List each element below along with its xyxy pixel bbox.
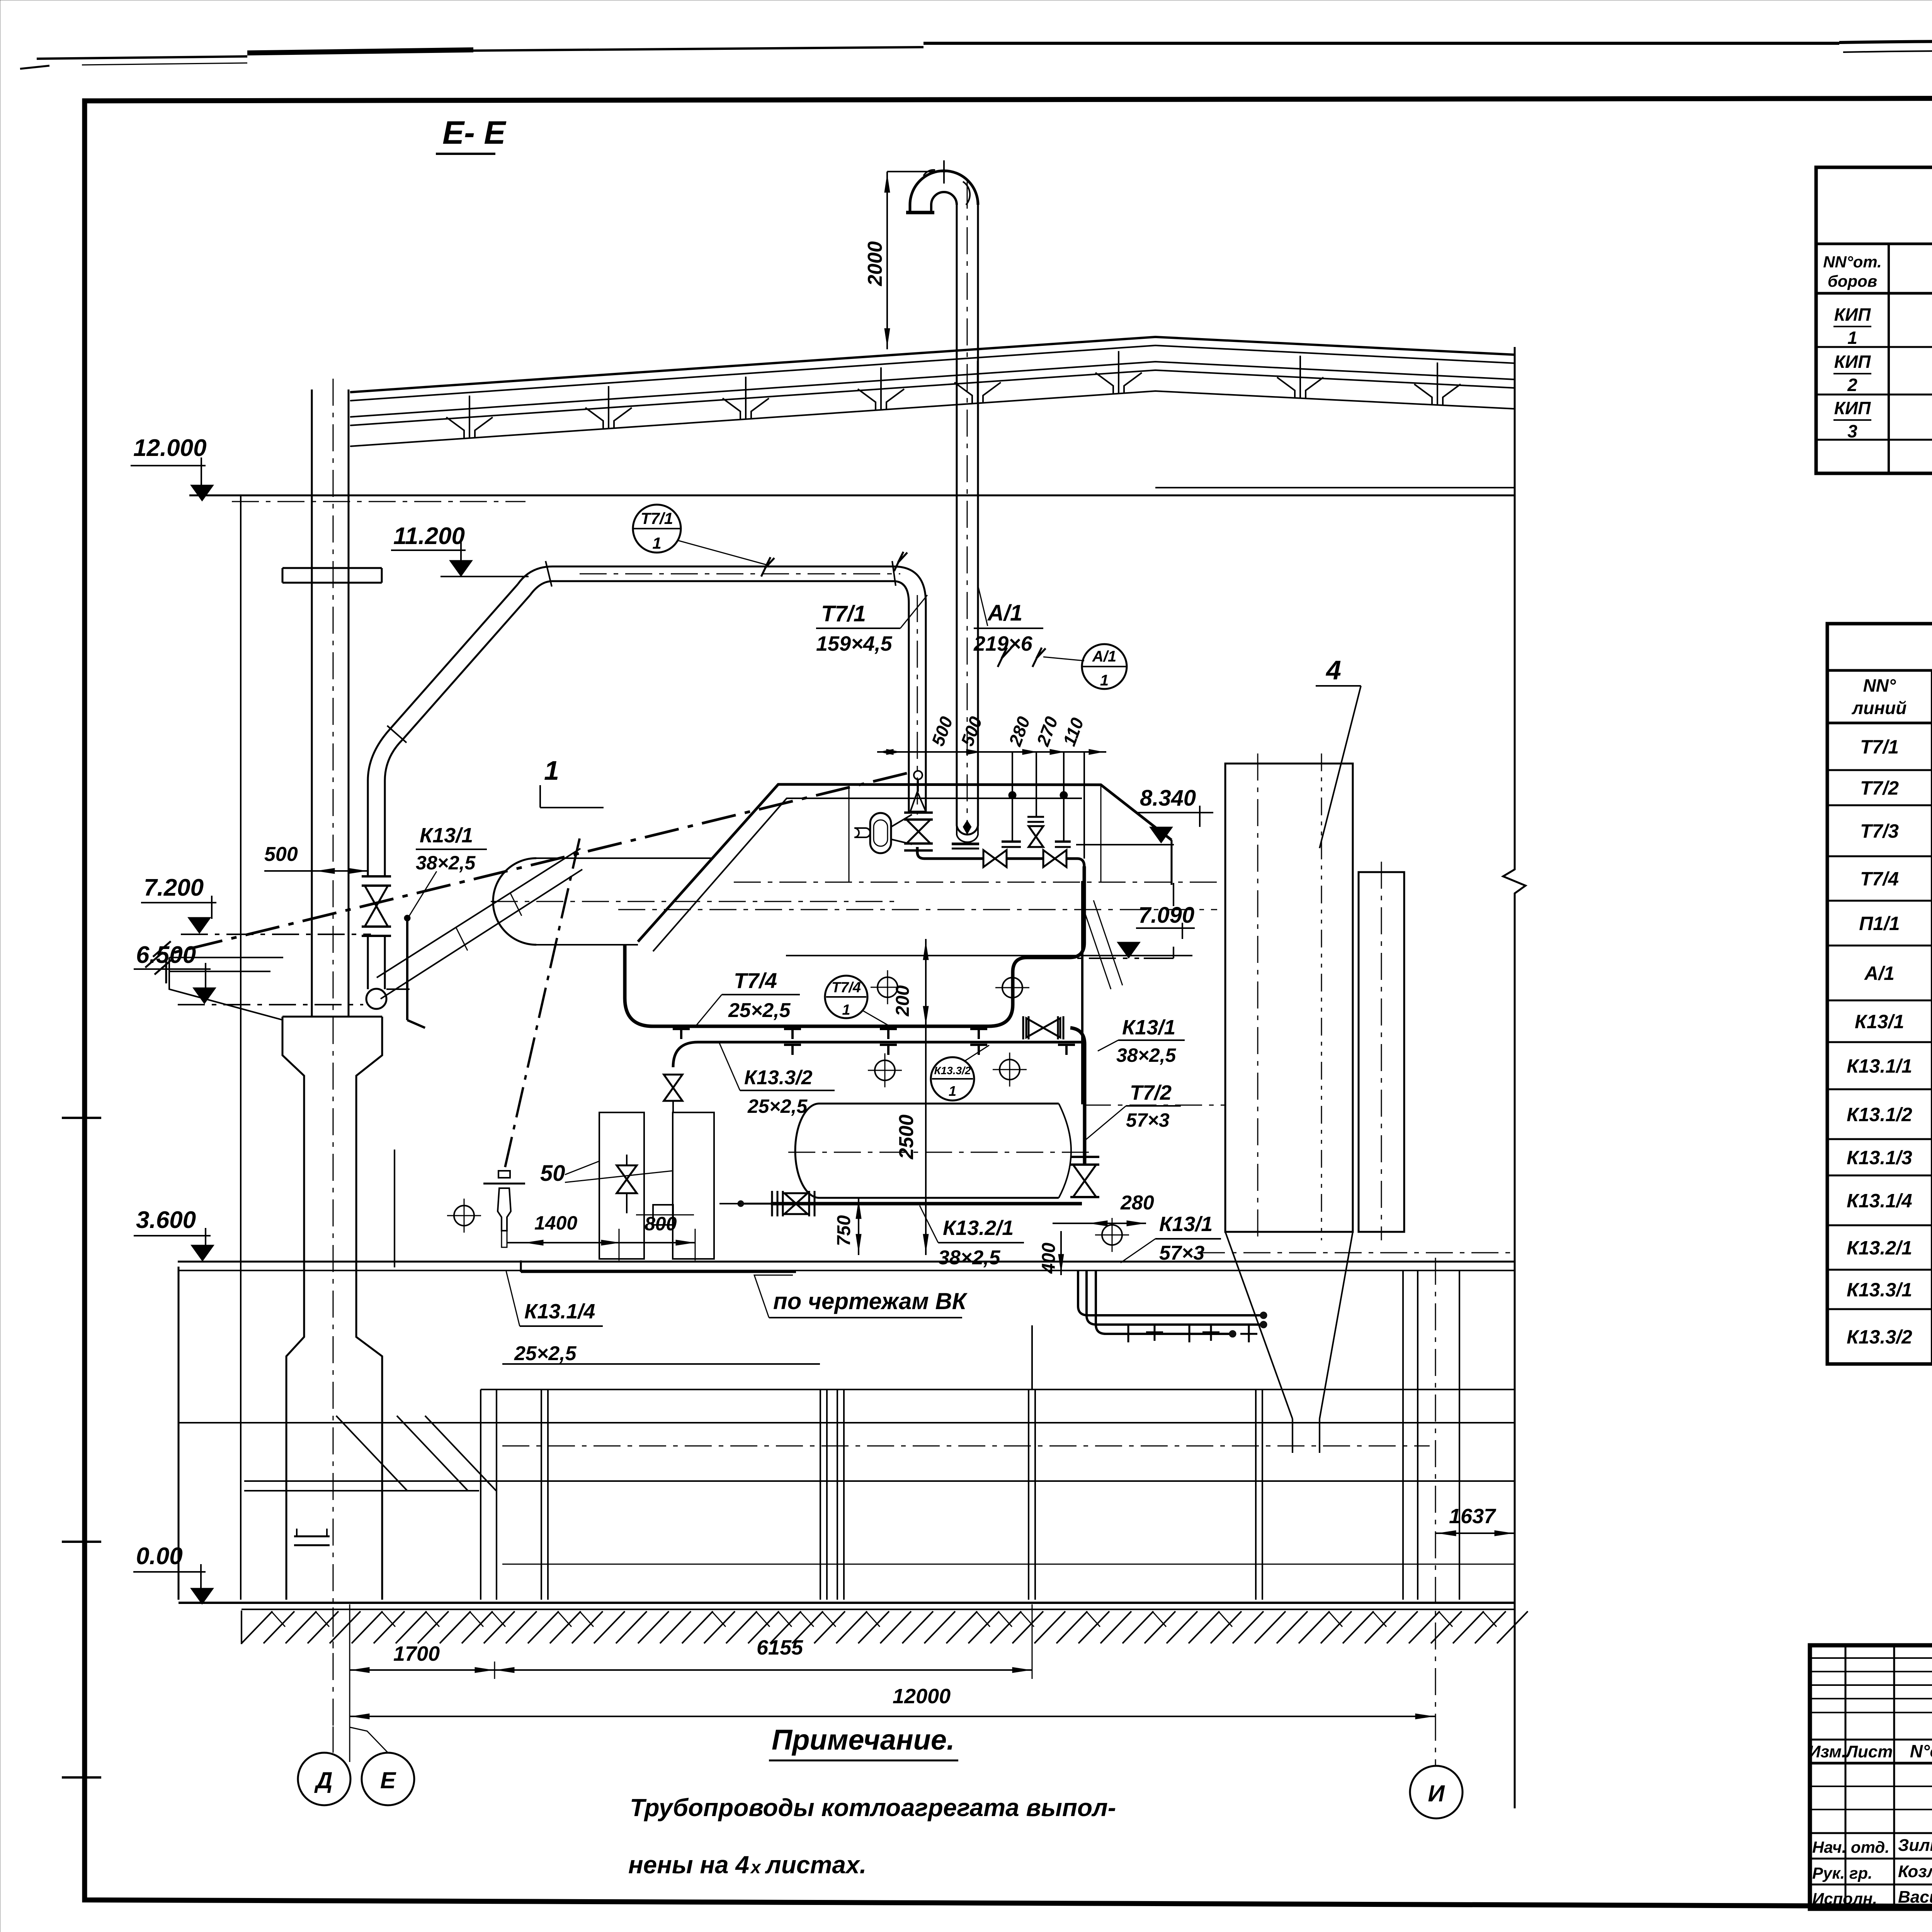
svg-text:К13.3/2: К13.3/2 bbox=[934, 1065, 971, 1077]
svg-text:Изм.: Изм. bbox=[1808, 1742, 1846, 1761]
svg-text:К13/1: К13/1 bbox=[1855, 1011, 1904, 1032]
svg-text:1700: 1700 bbox=[393, 1642, 440, 1665]
svg-text:7.200: 7.200 bbox=[144, 874, 204, 901]
svg-text:Лист: Лист bbox=[1845, 1742, 1893, 1761]
svg-text:2000: 2000 bbox=[864, 241, 886, 286]
svg-text:К13.3/2: К13.3/2 bbox=[744, 1066, 813, 1089]
svg-text:3: 3 bbox=[1847, 421, 1857, 441]
svg-text:1: 1 bbox=[949, 1083, 956, 1099]
svg-text:38×2,5: 38×2,5 bbox=[938, 1247, 1001, 1269]
svg-text:3.600: 3.600 bbox=[136, 1207, 196, 1233]
svg-text:6155: 6155 bbox=[757, 1636, 803, 1659]
svg-text:Т7/1: Т7/1 bbox=[821, 601, 866, 626]
svg-text:500: 500 bbox=[264, 843, 298, 866]
svg-text:4: 4 bbox=[1325, 655, 1341, 685]
svg-text:38×2,5: 38×2,5 bbox=[416, 852, 476, 874]
svg-text:38×2,5: 38×2,5 bbox=[1116, 1044, 1177, 1066]
svg-text:Т7/2: Т7/2 bbox=[1130, 1081, 1172, 1104]
svg-text:Е- Е: Е- Е bbox=[442, 114, 507, 151]
svg-text:Козлов: Козлов bbox=[1898, 1862, 1932, 1881]
svg-text:по чертежам ВК: по чертежам ВК bbox=[773, 1288, 968, 1314]
svg-text:25×2,5: 25×2,5 bbox=[747, 1095, 808, 1117]
svg-text:Исполн.: Исполн. bbox=[1812, 1889, 1877, 1908]
svg-text:1400: 1400 bbox=[534, 1212, 577, 1234]
svg-text:КИП: КИП bbox=[1834, 352, 1871, 372]
svg-text:1: 1 bbox=[1847, 328, 1857, 348]
svg-text:1: 1 bbox=[652, 534, 661, 552]
svg-text:280: 280 bbox=[1120, 1192, 1154, 1214]
svg-text:листах.: листах. bbox=[765, 1851, 866, 1879]
svg-text:К13.1/1: К13.1/1 bbox=[1847, 1055, 1912, 1077]
svg-text:Д: Д bbox=[314, 1767, 332, 1793]
svg-text:К13.2/1: К13.2/1 bbox=[943, 1216, 1014, 1240]
svg-text:К13.1/3: К13.1/3 bbox=[1847, 1147, 1912, 1168]
svg-text:К13.3/2: К13.3/2 bbox=[1847, 1326, 1912, 1348]
svg-text:х: х bbox=[750, 1857, 762, 1877]
svg-text:линий: линий bbox=[1852, 698, 1907, 718]
svg-text:Примечание.: Примечание. bbox=[772, 1724, 955, 1756]
svg-text:25×2,5: 25×2,5 bbox=[514, 1342, 577, 1365]
svg-text:Зильберштейн: Зильберштейн bbox=[1898, 1836, 1932, 1855]
svg-text:750: 750 bbox=[834, 1215, 854, 1246]
svg-text:NN°от.: NN°от. bbox=[1823, 253, 1882, 271]
svg-text:2: 2 bbox=[1847, 375, 1857, 395]
svg-text:Трубопроводы котлоагрегата в: Трубопроводы котлоагрегата выпол- bbox=[630, 1794, 1116, 1821]
svg-text:50: 50 bbox=[540, 1161, 565, 1186]
svg-text:11.200: 11.200 bbox=[393, 523, 465, 549]
svg-text:1637: 1637 bbox=[1449, 1505, 1497, 1528]
svg-text:25×2,5: 25×2,5 bbox=[728, 999, 791, 1022]
svg-text:Т7/4: Т7/4 bbox=[1860, 868, 1899, 890]
svg-text:К13.1/2: К13.1/2 bbox=[1847, 1104, 1912, 1126]
svg-text:159×4,5: 159×4,5 bbox=[816, 632, 893, 655]
svg-text:Т7/3: Т7/3 bbox=[1860, 820, 1899, 842]
svg-text:нены на 4: нены на 4 bbox=[628, 1851, 749, 1879]
svg-text:Рук. гр.: Рук. гр. bbox=[1812, 1864, 1872, 1882]
svg-text:КИП: КИП bbox=[1834, 398, 1871, 418]
svg-text:А/1: А/1 bbox=[1092, 648, 1116, 665]
svg-text:Нач. отд.: Нач. отд. bbox=[1812, 1838, 1889, 1856]
svg-text:1: 1 bbox=[544, 755, 559, 786]
svg-text:219×6: 219×6 bbox=[973, 632, 1033, 655]
svg-text:Т7/1: Т7/1 bbox=[1860, 736, 1899, 758]
svg-text:К13/1: К13/1 bbox=[1122, 1016, 1175, 1039]
svg-text:П1/1: П1/1 bbox=[1859, 913, 1900, 934]
svg-text:1: 1 bbox=[1100, 672, 1109, 689]
svg-text:А/1: А/1 bbox=[1864, 963, 1895, 984]
svg-text:800: 800 bbox=[645, 1213, 677, 1235]
svg-text:NN°: NN° bbox=[1863, 675, 1896, 696]
svg-text:1: 1 bbox=[842, 1002, 850, 1018]
svg-text:0.00: 0.00 bbox=[136, 1543, 183, 1570]
svg-text:И: И bbox=[1428, 1781, 1445, 1806]
svg-text:7.090: 7.090 bbox=[1138, 903, 1194, 928]
svg-text:Е: Е bbox=[380, 1767, 396, 1793]
svg-text:57×3: 57×3 bbox=[1126, 1109, 1170, 1131]
svg-text:К13/1: К13/1 bbox=[420, 824, 473, 847]
svg-text:К13.1/4: К13.1/4 bbox=[524, 1300, 595, 1323]
svg-text:Т7/4: Т7/4 bbox=[734, 968, 777, 993]
svg-text:КИП: КИП bbox=[1834, 304, 1871, 325]
svg-text:К13/1: К13/1 bbox=[1159, 1213, 1213, 1236]
svg-text:400: 400 bbox=[1039, 1243, 1059, 1274]
svg-text:К13.2/1: К13.2/1 bbox=[1847, 1237, 1912, 1259]
svg-text:боров: боров bbox=[1828, 272, 1877, 290]
svg-text:N°докум.: N°докум. bbox=[1910, 1741, 1932, 1761]
svg-text:200: 200 bbox=[893, 985, 913, 1017]
svg-text:12000: 12000 bbox=[893, 1685, 951, 1708]
svg-text:8.340: 8.340 bbox=[1140, 786, 1196, 811]
svg-text:К13.3/1: К13.3/1 bbox=[1847, 1279, 1912, 1301]
svg-text:12.000: 12.000 bbox=[133, 435, 207, 461]
svg-text:А/1: А/1 bbox=[987, 600, 1022, 626]
svg-text:К13.1/4: К13.1/4 bbox=[1847, 1190, 1912, 1212]
svg-text:Т7/2: Т7/2 bbox=[1860, 777, 1899, 799]
svg-text:Т7/4: Т7/4 bbox=[832, 980, 861, 996]
svg-text:Т7/1: Т7/1 bbox=[641, 509, 673, 527]
svg-text:Васильева: Васильева bbox=[1898, 1888, 1932, 1906]
